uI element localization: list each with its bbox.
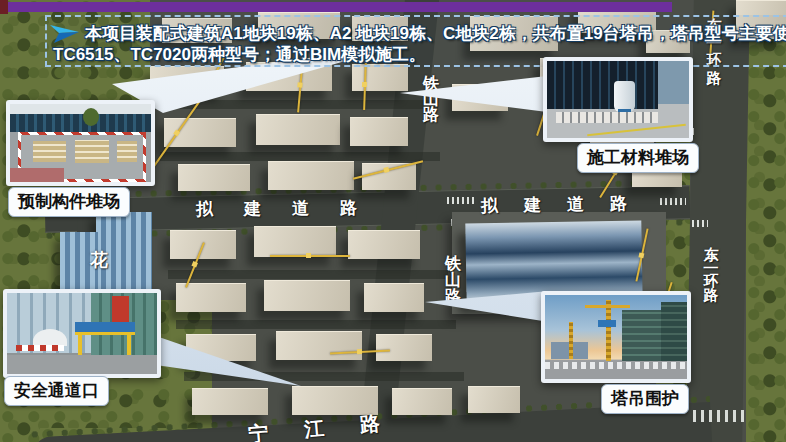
building-block xyxy=(178,164,250,191)
inset-barrier-striped xyxy=(16,345,64,351)
road-label-planned-right: 拟建道路 xyxy=(481,192,653,218)
road-label-tieshan-lower: 铁山路 xyxy=(442,242,463,290)
crosswalk xyxy=(693,410,745,422)
road-label-planned-left: 拟建道路 xyxy=(196,196,388,221)
building-block xyxy=(254,226,336,257)
callout-label-crane-enclosure: 塔吊围护 xyxy=(601,384,689,414)
bim-site-plan-slide: 拟建道路 拟建道路 铁山路 铁山路 花 东二环路 东二环路 宁江路 本项目装配式… xyxy=(0,0,786,442)
inset-photo-prefab-yard xyxy=(6,100,155,186)
building-block xyxy=(376,334,432,361)
inset-canopy-leg xyxy=(127,332,131,355)
tower-crane xyxy=(270,255,350,257)
inset-crane-jib xyxy=(585,305,630,308)
inset-road-line xyxy=(587,124,686,136)
building-block xyxy=(192,388,268,415)
building-block xyxy=(256,114,340,145)
inset-photo-safety-entrance xyxy=(3,289,161,378)
inset-crane-cab xyxy=(598,320,616,327)
callout-label-prefab-yard: 预制构件堆场 xyxy=(8,187,130,217)
site-lane xyxy=(184,372,464,381)
inset-precast-stacks xyxy=(33,141,67,161)
inset-dark-tower xyxy=(547,61,658,109)
inset-photo-crane-enclosure xyxy=(541,291,691,383)
building-block xyxy=(268,161,354,190)
site-lane xyxy=(168,270,448,279)
inset-crane-mast xyxy=(606,300,611,360)
inset-glass-building xyxy=(622,310,665,360)
inset-canopy-sign xyxy=(75,322,135,335)
building-block xyxy=(364,283,424,312)
building-block xyxy=(276,331,362,360)
road-label-hua: 花 xyxy=(90,248,108,272)
building-block xyxy=(350,117,408,146)
building-block xyxy=(468,386,520,413)
banner-text-line2: TC6515、TC7020两种型号；通过BIM模拟施工。 xyxy=(53,43,426,66)
inset-ground xyxy=(7,355,157,374)
building-block xyxy=(186,334,256,361)
inset-crane-mast xyxy=(569,322,573,359)
building-block xyxy=(264,280,350,311)
building-block xyxy=(352,64,408,91)
inset-building xyxy=(10,114,151,132)
building-block xyxy=(452,84,508,111)
callout-label-material-yard: 施工材料堆场 xyxy=(577,143,699,173)
inset-silo xyxy=(614,81,635,112)
inset-building xyxy=(10,104,151,114)
crosswalk xyxy=(660,198,686,205)
inset-glass-building xyxy=(661,302,687,361)
site-lane xyxy=(176,320,456,329)
top-left-corner-block xyxy=(0,0,8,14)
banner-text-line1: 本项目装配式建筑A1地块19栋、A2 地块19栋、C地块2栋，共布置19台塔吊，… xyxy=(85,22,786,45)
building-block xyxy=(362,163,416,190)
inset-photo-material-yard xyxy=(543,57,693,142)
road-label-tieshan-upper: 铁山路 xyxy=(420,62,441,107)
inset-canopy-leg xyxy=(78,332,82,355)
inset-stockyard-fence xyxy=(556,112,658,124)
inset-precast-stacks xyxy=(75,140,109,163)
road-label-east-ring-lower: 东二环路 xyxy=(701,233,720,289)
purple-accent-bar xyxy=(8,2,672,12)
inset-light-tower xyxy=(658,61,689,104)
crosswalk xyxy=(692,220,708,227)
inset-walkway xyxy=(10,168,64,182)
site-lane xyxy=(160,152,440,161)
blue-cursor-arrow-icon xyxy=(49,23,81,45)
inset-ground-fence xyxy=(545,362,687,369)
inset-precast-stacks xyxy=(117,141,137,161)
crosswalk xyxy=(447,197,475,204)
building-block xyxy=(348,230,420,259)
callout-label-safety-entrance: 安全通道口 xyxy=(4,376,109,406)
